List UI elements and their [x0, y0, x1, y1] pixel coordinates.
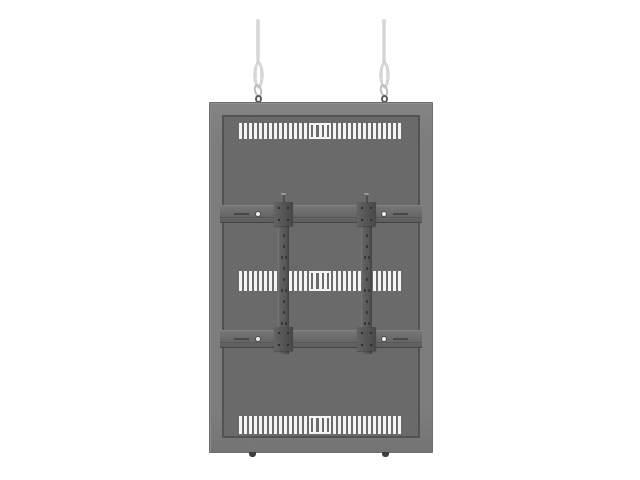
- vent-slot: [254, 271, 257, 291]
- vent-slot: [279, 416, 282, 434]
- rail-hole: [366, 234, 368, 237]
- rail-hole: [283, 234, 285, 237]
- vent-slot: [398, 123, 401, 139]
- hanging-wire-left: [257, 20, 259, 64]
- vent-slot: [289, 123, 292, 139]
- vent-slot: [333, 271, 336, 291]
- vent-slot: [264, 123, 267, 139]
- vent-slot: [304, 271, 307, 291]
- vent-slot: [343, 416, 346, 434]
- rail-seam: [220, 217, 422, 218]
- vent-row-bottom: [239, 416, 401, 434]
- rail-hole: [281, 289, 283, 292]
- rail-hole: [366, 245, 368, 248]
- rail-slot-right: [393, 213, 408, 215]
- vent-slot: [353, 123, 356, 139]
- rail-hole: [368, 256, 370, 259]
- vent-slot: [393, 123, 396, 139]
- rail-hole: [283, 278, 285, 281]
- vent-slot: [368, 123, 371, 139]
- rail-slot-right: [393, 338, 408, 340]
- vent-slot: [383, 271, 386, 291]
- vent-slot: [398, 271, 401, 291]
- rail-hole: [285, 289, 287, 292]
- rail-hole: [364, 289, 366, 292]
- vent-slot: [319, 273, 322, 289]
- rail-hole: [366, 278, 368, 281]
- vent-slot: [353, 271, 356, 291]
- vent-slot: [294, 416, 297, 434]
- vent-slot: [324, 125, 327, 137]
- vent-slot: [254, 123, 257, 139]
- vent-slot: [319, 418, 322, 432]
- hanging-wire-right: [383, 20, 385, 64]
- vent-slot: [284, 416, 287, 434]
- vent-slot: [264, 271, 267, 291]
- vent-row-top: [239, 123, 401, 139]
- foot-left: [249, 452, 256, 457]
- screw-head-left: [256, 212, 260, 216]
- vent-slot: [348, 416, 351, 434]
- vent-slot: [353, 416, 356, 434]
- horizontal-rail-upper: [220, 205, 422, 223]
- vent-slot: [264, 416, 267, 434]
- vent-slot: [388, 123, 391, 139]
- vent-slot: [299, 271, 302, 291]
- vent-slot: [274, 416, 277, 434]
- rail-top-screw-left: [281, 193, 286, 204]
- rail-hole: [366, 267, 368, 270]
- vent-slot: [378, 123, 381, 139]
- screw-head-left: [256, 337, 260, 341]
- vent-slot: [274, 271, 277, 291]
- plate-screws: [278, 207, 280, 209]
- vent-slot: [373, 123, 376, 139]
- rail-hole: [281, 322, 283, 325]
- rail-seam: [220, 342, 422, 343]
- vent-slot: [333, 416, 336, 434]
- vent-slot: [294, 271, 297, 291]
- vent-slot: [338, 416, 341, 434]
- vent-slot: [338, 123, 341, 139]
- vent-slot: [259, 271, 262, 291]
- mounting-plate-right-top: [357, 202, 376, 226]
- vent-slot: [333, 123, 336, 139]
- vent-slot: [239, 416, 242, 434]
- vent-slot: [398, 416, 401, 434]
- vent-slot: [294, 123, 297, 139]
- mount-back-panel: [209, 102, 433, 453]
- rail-slot-left: [234, 338, 249, 340]
- vent-slot: [304, 123, 307, 139]
- rail-hole: [283, 311, 285, 314]
- plate-screws: [278, 332, 280, 334]
- vent-slot: [393, 271, 396, 291]
- vent-slot: [363, 123, 366, 139]
- vent-slot: [388, 271, 391, 291]
- screw-stem: [283, 196, 285, 204]
- vent-center-box: [309, 416, 331, 434]
- vent-slot: [358, 416, 361, 434]
- vent-slot: [383, 123, 386, 139]
- vent-slot: [244, 416, 247, 434]
- vent-slot: [388, 416, 391, 434]
- foot-right: [382, 452, 389, 457]
- vent-slot: [313, 125, 316, 137]
- rail-hole: [281, 256, 283, 259]
- vent-slot: [363, 416, 366, 434]
- rail-hole: [366, 300, 368, 303]
- screw-head-right: [382, 212, 386, 216]
- vent-slot: [358, 123, 361, 139]
- vent-slot: [368, 416, 371, 434]
- rail-hole: [366, 311, 368, 314]
- vent-slot: [348, 271, 351, 291]
- rail-hole: [283, 267, 285, 270]
- rail-hole: [285, 322, 287, 325]
- vent-row-middle: [239, 271, 401, 291]
- rail-hole: [283, 300, 285, 303]
- rail-top-screw-right: [364, 193, 369, 204]
- vent-slot: [378, 416, 381, 434]
- vent-slot: [259, 416, 262, 434]
- vent-slot: [343, 123, 346, 139]
- vent-slot: [269, 123, 272, 139]
- vent-slot: [269, 271, 272, 291]
- vent-slot: [284, 123, 287, 139]
- vent-slot: [319, 125, 322, 137]
- vent-slot: [249, 416, 252, 434]
- vent-slot: [313, 418, 316, 432]
- vent-center-box: [309, 123, 331, 139]
- horizontal-rail-lower: [220, 330, 422, 348]
- vent-slot: [338, 271, 341, 291]
- rail-hole: [285, 256, 287, 259]
- vent-slot: [299, 123, 302, 139]
- vent-slot: [324, 418, 327, 432]
- vent-slot: [244, 271, 247, 291]
- rail-hole: [283, 245, 285, 248]
- vent-slot: [274, 123, 277, 139]
- plate-screws: [361, 207, 363, 209]
- vent-slot: [249, 123, 252, 139]
- rail-hole: [368, 289, 370, 292]
- vent-slot: [254, 416, 257, 434]
- screw-head-right: [382, 337, 386, 341]
- vent-slot: [269, 416, 272, 434]
- mounting-plate-right-bottom: [357, 327, 376, 351]
- vent-slot: [343, 271, 346, 291]
- vent-slot: [279, 123, 282, 139]
- mounting-plate-left-bottom: [274, 327, 293, 351]
- vent-slot: [244, 123, 247, 139]
- vent-slot: [239, 123, 242, 139]
- vent-slot: [304, 416, 307, 434]
- vent-slot: [383, 416, 386, 434]
- vent-slot: [239, 271, 242, 291]
- vent-slot: [378, 271, 381, 291]
- rail-hole: [368, 322, 370, 325]
- product-photo-scene: [0, 0, 640, 480]
- screw-stem: [366, 196, 368, 204]
- vent-slot: [373, 416, 376, 434]
- vent-slot: [289, 416, 292, 434]
- vent-slot: [259, 123, 262, 139]
- vent-slot: [373, 271, 376, 291]
- vent-slot: [348, 123, 351, 139]
- vent-slot: [289, 271, 292, 291]
- vent-center-box: [309, 271, 331, 291]
- vent-slot: [324, 273, 327, 289]
- vent-slot: [299, 416, 302, 434]
- mounting-plate-left-top: [274, 202, 293, 226]
- vent-slot: [313, 273, 316, 289]
- rail-hole: [364, 256, 366, 259]
- vent-slot: [249, 271, 252, 291]
- rail-slot-left: [234, 213, 249, 215]
- plate-screws: [361, 332, 363, 334]
- vent-slot: [393, 416, 396, 434]
- rail-hole: [364, 322, 366, 325]
